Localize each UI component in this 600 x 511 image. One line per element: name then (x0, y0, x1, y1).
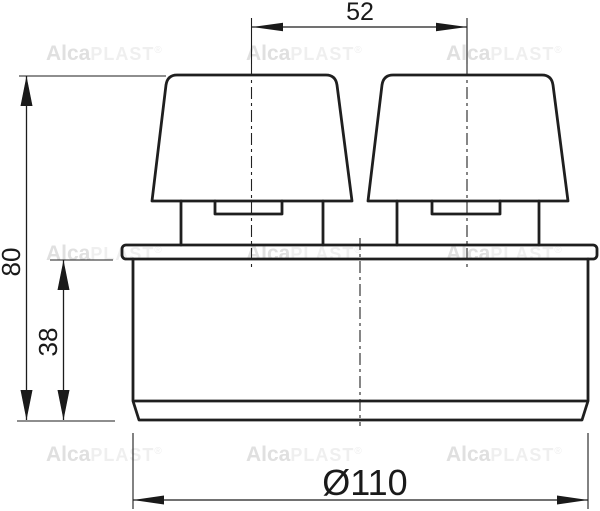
technical-drawing-page: AlcaPLAST® AlcaPLAST® AlcaPLAST® AlcaPLA… (0, 0, 600, 511)
dimension-cap-spacing: 52 (252, 0, 467, 31)
dim-label-52: 52 (346, 0, 374, 26)
brand-watermark: AlcaPLAST® (246, 42, 362, 65)
center-lines (252, 18, 468, 426)
right-cap-outline (368, 75, 568, 201)
brand-watermark: AlcaPLAST® (46, 443, 162, 466)
arrowhead-right (557, 496, 588, 505)
brand-watermark: AlcaPLAST® (446, 443, 562, 466)
left-neck-step (215, 201, 282, 214)
brand-watermark: AlcaPLAST® (46, 42, 162, 65)
arrowhead-left (252, 23, 283, 31)
arrowhead-up (21, 76, 33, 106)
dim-label-diameter: Ø110 (322, 462, 407, 503)
dimension-body-height: 38 (17, 260, 115, 421)
arrowhead-down (58, 390, 70, 420)
arrowhead-down (21, 390, 33, 420)
dim-label-38: 38 (33, 328, 63, 357)
dim-label-80: 80 (0, 248, 26, 277)
air-admittance-valve-drawing: AlcaPLAST® AlcaPLAST® AlcaPLAST® AlcaPLA… (0, 0, 600, 511)
right-neck-step (432, 201, 500, 214)
brand-watermark: AlcaPLAST® (446, 42, 562, 65)
arrowhead-right (436, 23, 467, 31)
arrowhead-left (133, 496, 164, 505)
